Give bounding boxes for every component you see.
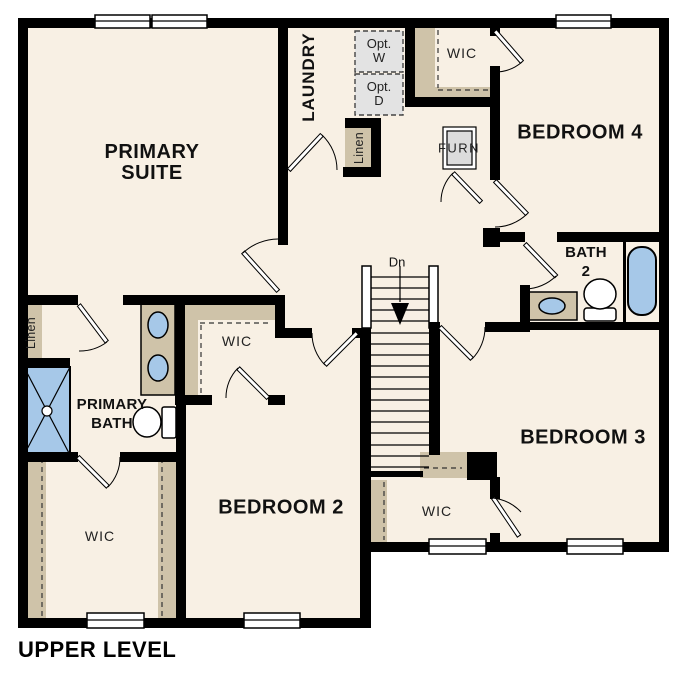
optional-dryer-label: Opt. D: [367, 80, 392, 108]
room-label-bath2: BATH 2: [565, 243, 607, 281]
plan-title: UPPER LEVEL: [18, 637, 176, 663]
furnace-label: FURN: [438, 141, 480, 156]
room-label-line: BATH: [77, 414, 148, 433]
optional-washer-label: Opt. W: [367, 37, 392, 65]
room-label-line: BATH: [565, 243, 607, 262]
shower: [24, 367, 70, 455]
stairs-down-label: Dn: [389, 255, 406, 270]
room-label-bedroom3: BEDROOM 3: [520, 428, 646, 449]
room-label-primary-bath: PRIMARY BATH: [77, 395, 148, 433]
room-label-bedroom2: BEDROOM 2: [218, 498, 344, 519]
window: [95, 15, 150, 28]
vanity-bath2: [528, 292, 577, 320]
linen-label-primary-bath: Linen: [24, 317, 38, 349]
room-label-line: PRIMARY: [77, 395, 148, 414]
window: [429, 539, 486, 554]
wic-label-bedroom4: WIC: [447, 45, 477, 61]
room-label-laundry: LAUNDRY: [299, 32, 319, 121]
room-label-line: SUITE: [105, 163, 200, 184]
window: [244, 613, 300, 628]
window: [556, 15, 611, 28]
wic-label-primary: WIC: [85, 528, 115, 544]
floor-plan-drawing: [0, 0, 687, 687]
wic-label-bedroom2: WIC: [222, 333, 252, 349]
double-vanity: [141, 300, 175, 395]
window: [152, 15, 207, 28]
opt-label-line: W: [367, 51, 392, 65]
room-label-line: PRIMARY: [105, 142, 200, 163]
bathtub: [628, 247, 656, 315]
room-label-primary-suite: PRIMARY SUITE: [105, 142, 200, 184]
wic-label-bedroom3: WIC: [422, 503, 452, 519]
room-label-line: 2: [565, 262, 607, 281]
floor-plan: PRIMARY SUITE LAUNDRY Opt. W Opt. D Line…: [0, 0, 687, 687]
window: [567, 539, 623, 554]
opt-label-line: Opt.: [367, 37, 392, 51]
linen-label-laundry: Linen: [352, 132, 366, 164]
room-label-bedroom4: BEDROOM 4: [517, 123, 643, 144]
opt-label-line: Opt.: [367, 80, 392, 94]
toilet-bath2: [584, 279, 616, 321]
window: [87, 613, 144, 628]
opt-label-line: D: [367, 94, 392, 108]
